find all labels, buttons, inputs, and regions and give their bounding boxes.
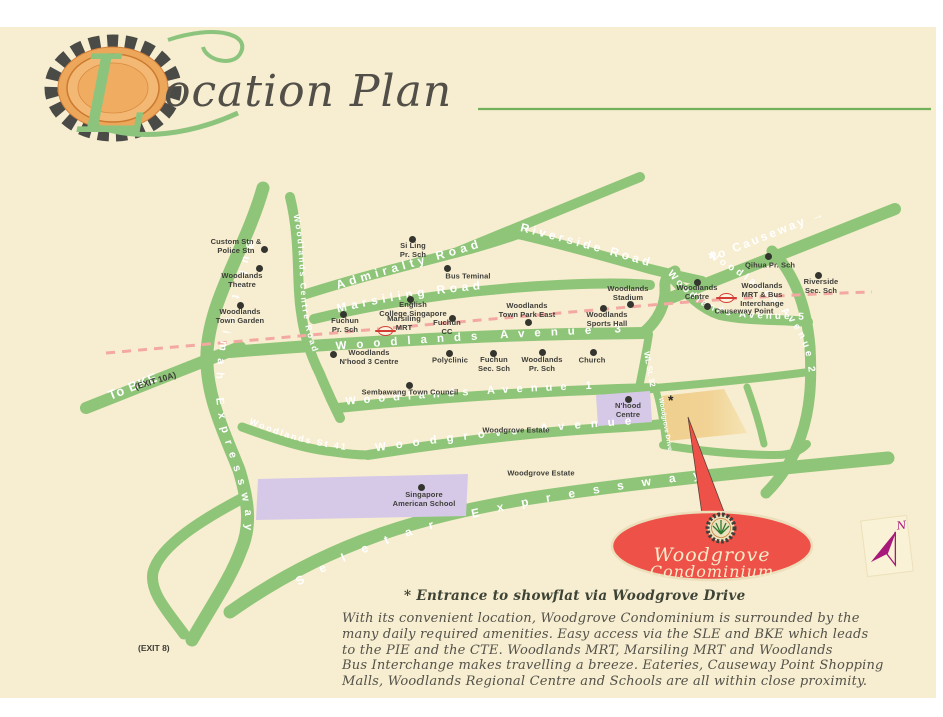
landmark-label: Woodlands Town Garden [216, 308, 264, 326]
landmark-dot [765, 253, 772, 260]
landmark-label: Sembawang Town Council [362, 389, 459, 398]
landmark-label: Woodlands N'hood 3 Centre [339, 349, 398, 367]
landmark-dot [330, 351, 337, 358]
landmark-dot [590, 349, 597, 356]
landmark-label: Bus Teminal [445, 273, 490, 282]
landmark-dot [444, 265, 451, 272]
landmark-label: Fuchun Sec. Sch [478, 356, 510, 374]
landmark-label: Woodlands Stadium [607, 285, 648, 303]
landmark-label: Marsiling MRT [387, 315, 421, 333]
landmark-label: Singapore American School [393, 491, 456, 509]
entrance-note: * Entrance to showflat via Woodgrove Dri… [404, 588, 745, 604]
landmark-label: Church [579, 357, 606, 366]
landmark-label: Si Ling Pr. Sch [400, 242, 426, 260]
landmark-label: Woodgrove Estate [507, 470, 574, 479]
landmark-label: Woodgrove Estate [482, 427, 549, 436]
mrt-icon-bar [716, 297, 737, 300]
landmark-label: Woodlands Pr. Sch [521, 356, 562, 374]
landmark-label: Custom Stn & Police Stn [211, 238, 262, 256]
landmark-label: Polyclinic [432, 357, 468, 366]
landmark-label: Fuchun Pr. Sch [331, 317, 359, 335]
landmark-label: Riverside Sec. Sch [804, 278, 839, 296]
landmark-dot [261, 246, 268, 253]
landmark-dot [704, 303, 711, 310]
landmark-label: Woodlands MRT & Bus Interchange [740, 282, 784, 308]
landmark-label: Causeway Point [715, 308, 774, 317]
landmark-label: Woodlands Sports Hall [586, 311, 627, 329]
landmark-label: Woodlands Centre [676, 284, 717, 302]
landmark-label: N'hood Centre [615, 402, 641, 420]
description-paragraph: With its convenient location, Woodgrove … [342, 611, 884, 690]
landmark-label: Fuchun CC [433, 319, 461, 337]
page-title: ocation Plan [164, 66, 452, 117]
landmark-label: Qihua Pr. Sch [745, 262, 795, 271]
landmark-label: Woodlands Theatre [221, 272, 262, 290]
mrt-station-icon [719, 293, 734, 303]
landmark-label: Woodlands Town Park East [499, 302, 556, 320]
landmark-layer: Custom Stn & Police StnWoodlands Theatre… [0, 0, 943, 717]
